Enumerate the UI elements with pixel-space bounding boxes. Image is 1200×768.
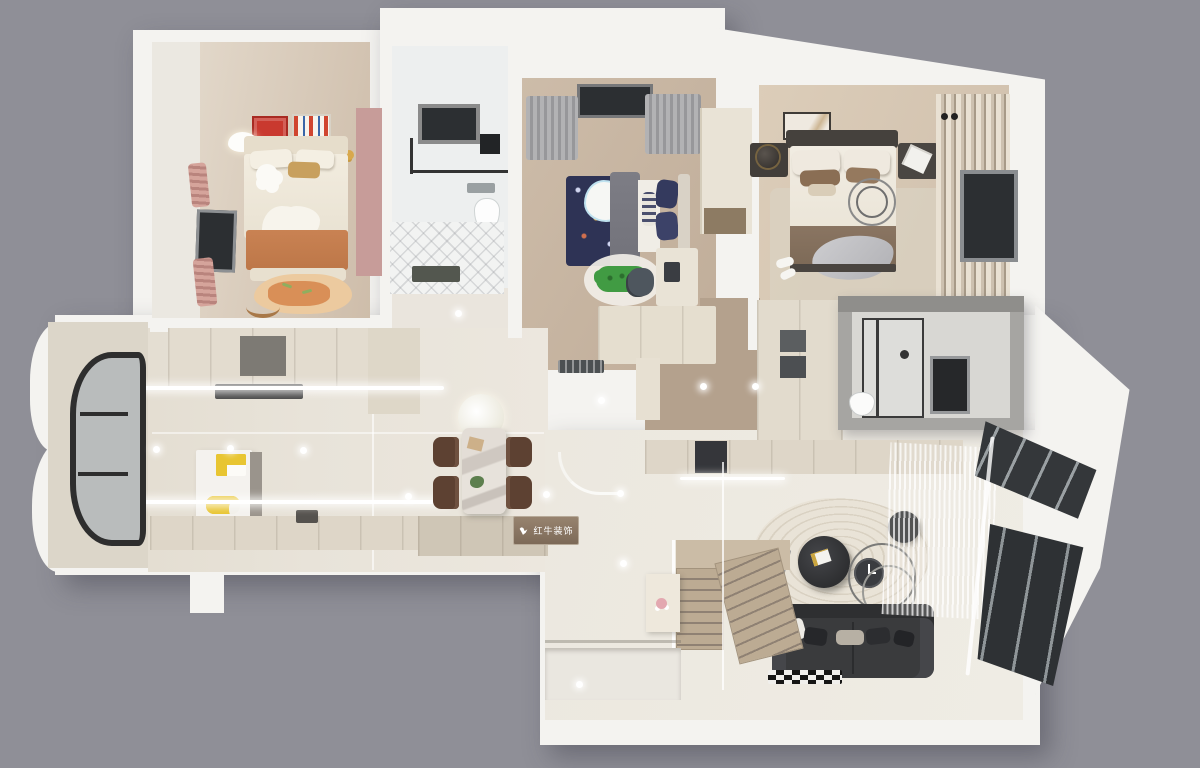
balcony-curved-window	[70, 352, 146, 546]
stairs-flight-straight	[676, 568, 724, 650]
master-bath-glass-edge	[876, 318, 879, 416]
downlight-dot	[455, 310, 462, 317]
kitchen-led-strip-upper	[112, 386, 444, 390]
downlight-dot	[752, 383, 759, 390]
kids-flower-cushion	[256, 164, 278, 186]
kitchen-island-side-panel	[250, 452, 262, 518]
downlight-dot	[300, 447, 307, 454]
downlight-dot	[153, 446, 160, 453]
boys-wardrobe-niche	[704, 208, 746, 234]
bathroom-glass-partition-h	[410, 170, 508, 173]
bathroom-doormat	[412, 266, 460, 282]
downlight-dot	[598, 397, 605, 404]
sofa-pillow-dark-1	[803, 626, 828, 646]
downlight-dot	[700, 383, 707, 390]
boys-low-cabinet	[598, 306, 716, 364]
boys-desk-chair	[628, 268, 654, 296]
master-bath-fixture	[900, 350, 909, 359]
downlight-dot	[227, 445, 234, 452]
checkered-mat	[768, 670, 842, 684]
brand-watermark-plaque: 红牛装饰	[513, 516, 579, 545]
master-table-lamp	[757, 146, 779, 168]
boys-curtain-right	[645, 94, 701, 154]
kids-pink-accent-wall	[356, 108, 382, 276]
boys-desk-laptop	[664, 262, 680, 282]
sofa-pillow-dark-2	[865, 627, 891, 646]
master-window	[960, 170, 1018, 262]
master-pendant-light-2	[951, 113, 958, 120]
downlight-dot	[576, 681, 583, 688]
downlight-dot	[617, 490, 624, 497]
kitchen-open-shelf-dark	[240, 336, 286, 376]
bathroom-shelf	[467, 183, 495, 193]
cabinet-flower-vase	[656, 598, 667, 609]
master-bath-wall-top	[838, 296, 1024, 312]
sofa-pillow-gray	[836, 630, 864, 645]
boys-pillow-striped	[642, 192, 656, 226]
boys-pillow-2	[655, 211, 680, 241]
master-bed-footboard	[790, 264, 896, 272]
bathroom-glass-partition-v	[410, 138, 413, 174]
floor-plan-render: 红牛装饰	[0, 0, 1200, 768]
wall-bath-boys-divider	[508, 46, 522, 338]
entry-doormat	[558, 360, 604, 373]
brand-watermark-text: 红牛装饰	[533, 524, 573, 537]
entry-step-edge	[545, 640, 681, 643]
master-bath-window	[930, 356, 970, 414]
boys-pillow-1	[654, 179, 680, 210]
stairs-glass-rail-2	[722, 462, 724, 690]
hall-cabinet-column	[636, 358, 660, 420]
bathroom-shower-fixture	[480, 134, 500, 154]
master-pillow-small	[808, 184, 836, 196]
balcony-window-mullion-1	[80, 412, 128, 416]
boys-window	[577, 84, 653, 118]
kitchen-cooktop-dark	[296, 510, 318, 523]
downlight-dot	[405, 493, 412, 500]
entry-step-platform	[545, 648, 681, 700]
kitchen-led-strip-lower	[112, 500, 448, 504]
balcony-window-mullion-2	[78, 472, 128, 476]
tv-wall-led-strip	[680, 477, 785, 480]
dining-chair-1	[433, 437, 459, 467]
dining-chair-4	[506, 476, 532, 509]
bathroom-window	[418, 104, 480, 144]
closet-open-shelf-2	[780, 356, 806, 378]
kitchen-lemons-board	[216, 454, 246, 476]
master-pendant-light-1	[941, 113, 948, 120]
downlight-dot	[620, 560, 627, 567]
boys-curtain-left	[526, 96, 578, 160]
bathroom-floor-tiles	[390, 222, 504, 294]
kids-rocker-toy	[246, 296, 280, 318]
kitchen-lower-counter	[150, 516, 418, 550]
master-ring-decor-inner	[856, 186, 888, 218]
downlight-dot	[543, 491, 550, 498]
closet-open-shelf-1	[780, 330, 806, 352]
kitchen-counter-column	[368, 328, 420, 414]
dining-chair-2	[433, 476, 459, 509]
dining-chair-3	[506, 437, 532, 467]
kids-pillow-tan	[288, 161, 321, 178]
kitchen-lemons-bowl	[206, 496, 240, 514]
bull-logo-icon	[518, 525, 529, 536]
kids-orange-blanket	[246, 230, 348, 270]
